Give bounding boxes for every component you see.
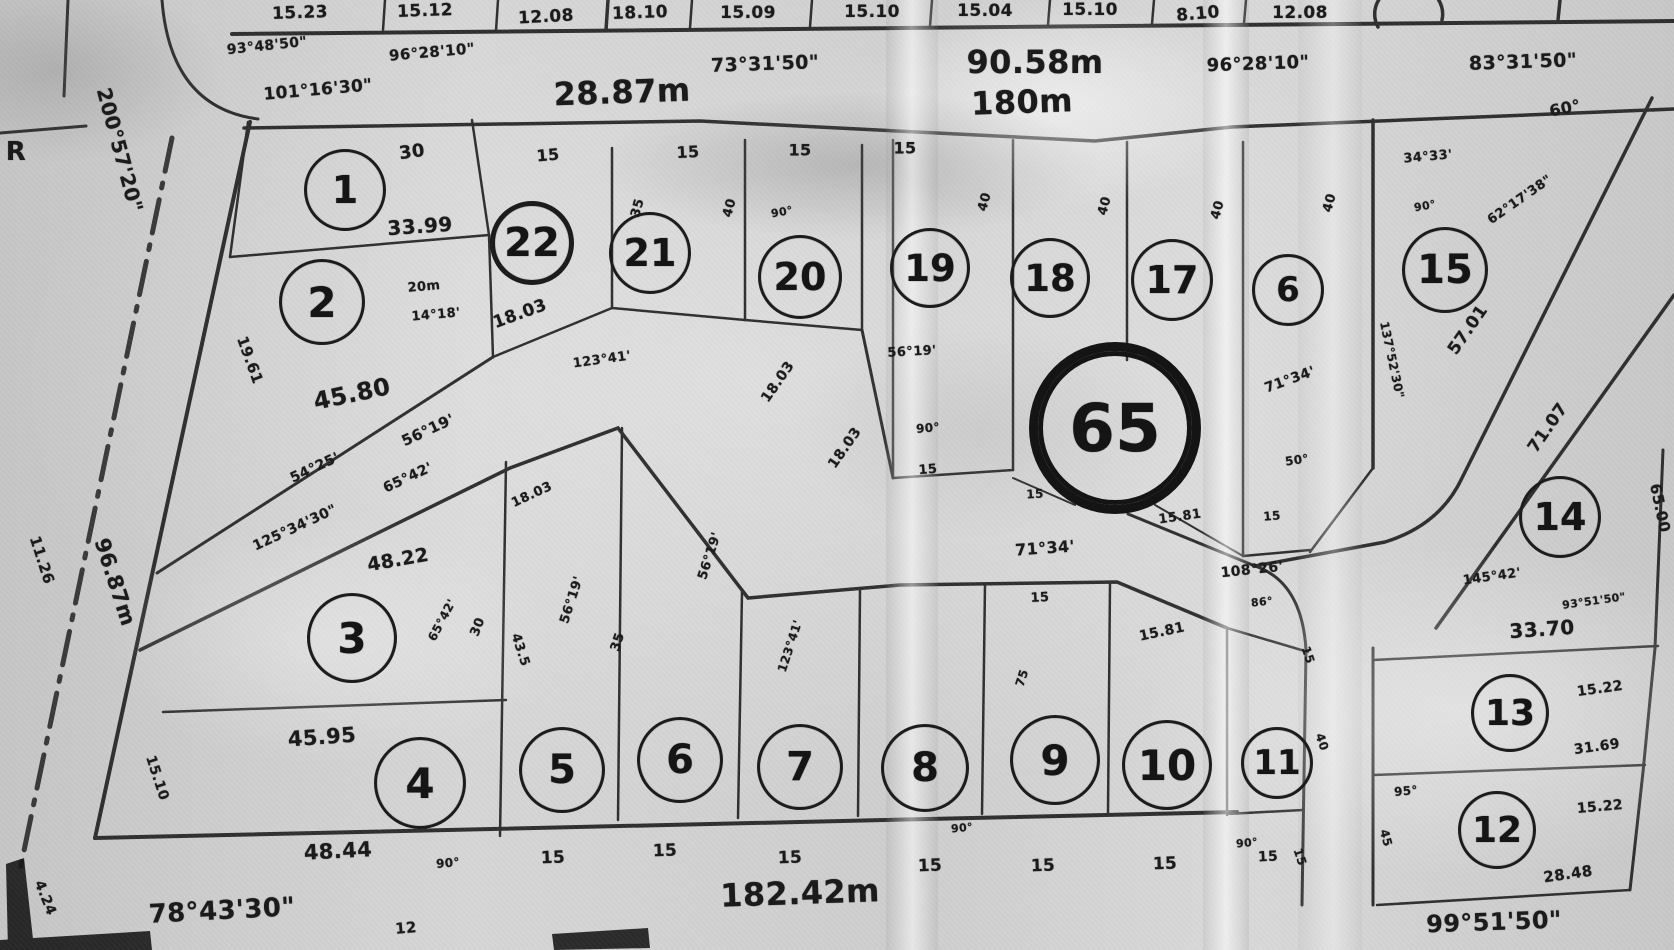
lot-number-circle: 9 xyxy=(1010,715,1100,805)
angle-label: 90° xyxy=(915,420,940,436)
measurement-label: 15 xyxy=(536,145,561,166)
measurement-label: 33.99 xyxy=(387,212,454,240)
lot-number-circle: 4 xyxy=(374,737,466,829)
road-length-label: 180m xyxy=(970,81,1073,123)
measurement-label: 48.44 xyxy=(303,837,373,865)
bearing-label: 56°19' xyxy=(887,343,937,361)
scan-edge-marks xyxy=(0,858,650,950)
lot-number-circle: 13 xyxy=(1471,674,1549,752)
lot-number-circle: 7 xyxy=(757,724,843,810)
measurement-label: 15 xyxy=(917,856,942,877)
measurement-label: 15 xyxy=(540,848,565,869)
bearing-label: 73°31'50" xyxy=(711,51,820,77)
measurement-label: 15 xyxy=(676,142,700,162)
lot-number-circle: 12 xyxy=(1458,791,1536,869)
lot-number-circle: 5 xyxy=(519,727,605,813)
lot-number-circle: 21 xyxy=(609,212,691,294)
measurement-label: 33.70 xyxy=(1509,615,1576,643)
measurement-label: 15.09 xyxy=(720,3,776,23)
lot-number-circle: 6 xyxy=(1252,254,1324,326)
bearing-label: 96°28'10" xyxy=(1206,52,1309,77)
lot-number-circle: 20 xyxy=(758,235,842,319)
road-length-label: 90.58m xyxy=(967,43,1104,81)
lot-number-circle: 1 xyxy=(304,149,386,231)
lot-number-circle: 10 xyxy=(1122,720,1212,810)
road-letter-label: R xyxy=(6,137,26,167)
measurement-label: 15 xyxy=(918,462,938,479)
measurement-label: 15 xyxy=(1257,848,1278,865)
measurement-label: 15 xyxy=(1263,508,1282,523)
measurement-label: 15 xyxy=(1030,590,1050,606)
measurement-label: 15 xyxy=(788,141,811,160)
measurement-label: 15.10 xyxy=(1062,0,1118,20)
scanned-survey-map: 1 2 22 21 20 19 18 17 6 15 65 3 4 5 6 7 … xyxy=(0,0,1674,950)
measurement-label: 15.04 xyxy=(957,1,1013,21)
angle-label: 95° xyxy=(1393,783,1418,799)
lot-number-circle: 17 xyxy=(1131,239,1213,321)
measurement-label: 8.10 xyxy=(1175,2,1220,26)
lot-number-circle: 19 xyxy=(890,228,970,308)
lot-number-circle: 2 xyxy=(279,259,365,345)
measurement-label: 15.23 xyxy=(272,2,328,24)
measurement-label: 12 xyxy=(394,918,417,938)
bearing-label: 99°51'50" xyxy=(1426,906,1563,939)
bearing-label: 83°31'50" xyxy=(1469,49,1578,75)
measurement-label: 15 xyxy=(1030,856,1055,877)
measurement-label: 15 xyxy=(1152,854,1177,875)
measurement-label: 12.08 xyxy=(518,6,575,29)
measurement-label: 45.95 xyxy=(287,723,357,752)
lot-number-circle: 6 xyxy=(637,717,723,803)
lot-number-circle: 18 xyxy=(1010,238,1090,318)
lot-number-circle: 65 xyxy=(1038,351,1192,505)
angle-label: 90° xyxy=(950,821,973,836)
measurement-label: 12.08 xyxy=(1272,3,1328,23)
measurement-label: 15.10 xyxy=(844,2,900,22)
lot-number-circle: 22 xyxy=(490,201,574,285)
lot-number-circle: 8 xyxy=(881,724,969,812)
measurement-label: 15 xyxy=(1026,487,1044,502)
lot-number-circle: 3 xyxy=(307,593,397,683)
measurement-label: 15.12 xyxy=(397,0,453,22)
road-length-label: 28.87m xyxy=(553,71,691,114)
measurement-label: 30 xyxy=(398,140,427,164)
measurement-label: 18.10 xyxy=(612,2,668,24)
lot-number-circle: 14 xyxy=(1519,476,1601,558)
angle-label: 90° xyxy=(1235,836,1258,851)
road-length-label: 182.42m xyxy=(720,871,881,915)
angle-label: 90° xyxy=(435,855,460,871)
parcel-boundary-lines xyxy=(0,0,1674,950)
measurement-label: 20m xyxy=(407,278,441,296)
angle-label: 86° xyxy=(1250,594,1273,609)
lot-number-circle: 11 xyxy=(1241,727,1313,799)
measurement-label: 15 xyxy=(652,841,677,862)
measurement-label: 15 xyxy=(893,139,916,158)
measurement-label: 15 xyxy=(777,848,802,869)
